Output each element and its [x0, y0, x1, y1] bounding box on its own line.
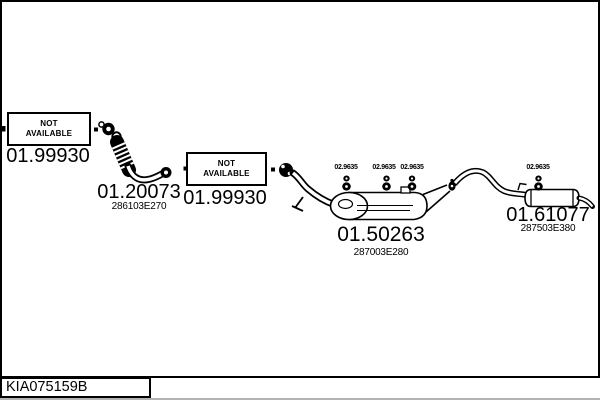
part-number-rear-muffler: 287503E380 [506, 223, 590, 234]
hanger-code-1[interactable]: 02.9635 [332, 164, 360, 171]
not-available-box-center: NOT AVAILABLE [186, 152, 267, 186]
hanger-icon [408, 176, 417, 191]
not-available-label: NOT AVAILABLE [20, 119, 78, 140]
hanger-icon [534, 176, 543, 191]
exhaust-parts-diagram: NOT AVAILABLE NOT AVAILABLE 01.99930 01.… [0, 0, 600, 400]
not-available-box-front: NOT AVAILABLE [7, 112, 91, 146]
part-number-flex-pipe: 286103E270 [95, 201, 183, 212]
not-available-label: NOT AVAILABLE [198, 159, 256, 180]
drawing-number: KIA075159B [6, 379, 87, 395]
center-pipe-drawing [292, 173, 334, 211]
hanger-icon [342, 176, 351, 191]
part-number-center-muffler: 287003E280 [331, 247, 431, 258]
drawing-number-box: KIA075159B [0, 377, 151, 398]
part-code-center-pipe[interactable]: 01.99930 [181, 187, 269, 210]
part-code-center-muffler[interactable]: 01.50263 [328, 223, 434, 247]
intermediate-pipe-drawing [455, 171, 527, 195]
part-code-front-pipe[interactable]: 01.99930 [3, 145, 93, 168]
hanger-code-2[interactable]: 02.9635 [370, 164, 398, 171]
flex-pipe-drawing [112, 142, 171, 180]
center-muffler-drawing [331, 185, 451, 220]
hanger-code-3[interactable]: 02.9635 [398, 164, 426, 171]
exhaust-line-art [0, 0, 600, 378]
hanger-code-4[interactable]: 02.9635 [524, 164, 552, 171]
hanger-icon [382, 176, 391, 191]
